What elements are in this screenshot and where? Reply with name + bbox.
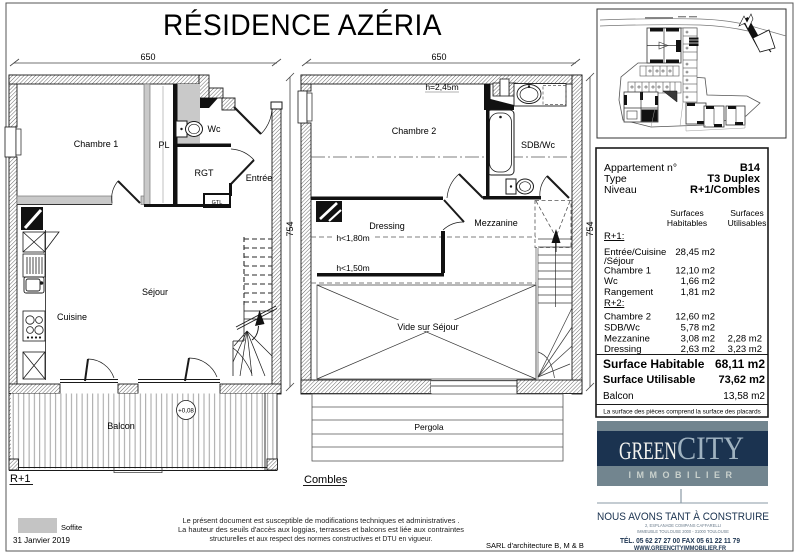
svg-text:12,10 m2: 12,10 m2 [675, 266, 715, 277]
svg-text:PL: PL [158, 140, 169, 150]
svg-text:Séjour: Séjour [142, 287, 168, 297]
svg-text:h<1,50m: h<1,50m [336, 263, 369, 273]
svg-text:Cuisine: Cuisine [57, 312, 87, 322]
svg-text:Chambre 2: Chambre 2 [392, 126, 437, 136]
svg-text:R+2:: R+2: [604, 298, 624, 309]
svg-text:+0,08: +0,08 [178, 408, 194, 415]
svg-text:Mezzanine: Mezzanine [474, 218, 518, 228]
svg-text:structurelles et aux respect d: structurelles et aux respect des normes … [210, 536, 433, 543]
svg-text:RÉSIDENCE AZÉRIA: RÉSIDENCE AZÉRIA [163, 9, 442, 42]
svg-text:Dressing: Dressing [604, 344, 642, 355]
svg-text:R+1:: R+1: [604, 231, 624, 242]
svg-text:Pergola: Pergola [414, 422, 444, 432]
svg-text:2,63 m2: 2,63 m2 [681, 344, 715, 355]
svg-text:31 Janvier 2019: 31 Janvier 2019 [13, 536, 70, 545]
svg-text:Mezzanine: Mezzanine [604, 334, 650, 345]
svg-text:Wc: Wc [604, 276, 618, 287]
svg-text:3,23 m2: 3,23 m2 [728, 344, 762, 355]
svg-text:754: 754 [585, 221, 595, 236]
svg-text:IMMOBILIER: IMMOBILIER [629, 470, 738, 480]
svg-text:5,78 m2: 5,78 m2 [681, 323, 715, 334]
svg-text:SARL d'architecture B, M & B: SARL d'architecture B, M & B [486, 541, 584, 550]
svg-text:2,28 m2: 2,28 m2 [728, 334, 762, 345]
svg-text:Niveau: Niveau [604, 184, 637, 196]
svg-text:28,45 m2: 28,45 m2 [675, 247, 715, 258]
svg-text:RGT: RGT [195, 168, 215, 178]
svg-text:Entrée: Entrée [246, 173, 273, 183]
svg-text:12,60 m2: 12,60 m2 [675, 312, 715, 323]
svg-text:73,62 m2: 73,62 m2 [719, 374, 765, 386]
svg-text:Surfaces: Surfaces [730, 208, 764, 218]
svg-text:TÉL. 05 62 27 27 00 FAX 05 61: TÉL. 05 62 27 27 00 FAX 05 61 22 11 79 [620, 536, 740, 545]
svg-text:Dressing: Dressing [369, 221, 405, 231]
svg-text:La hauteur des seuils d'accès: La hauteur des seuils d'accès aux loggia… [178, 527, 465, 534]
svg-text:CITY: CITY [677, 431, 744, 467]
svg-text:GREEN: GREEN [619, 438, 677, 465]
svg-text:650: 650 [140, 52, 155, 62]
svg-text:Soffite: Soffite [61, 523, 82, 532]
svg-text:650: 650 [431, 52, 446, 62]
svg-text:Balcon: Balcon [603, 391, 634, 402]
svg-text:Surface Utilisable: Surface Utilisable [603, 374, 695, 386]
svg-text:R+1: R+1 [10, 473, 31, 485]
svg-text:NOUS AVONS TANT À CONSTRUIRE: NOUS AVONS TANT À CONSTRUIRE [597, 510, 769, 523]
svg-text:Balcon: Balcon [107, 421, 135, 431]
svg-text:Chambre 1: Chambre 1 [604, 266, 651, 277]
svg-text:Chambre 1: Chambre 1 [74, 139, 119, 149]
svg-text:3,08 m2: 3,08 m2 [681, 334, 715, 345]
svg-text:h=2,45m: h=2,45m [425, 82, 458, 92]
svg-text:WWW.GREENCITYIMMOBILIER.FR: WWW.GREENCITYIMMOBILIER.FR [634, 545, 726, 552]
svg-text:Rangement: Rangement [604, 287, 653, 298]
svg-text:Chambre 2: Chambre 2 [604, 312, 651, 323]
svg-text:13,58 m2: 13,58 m2 [723, 391, 765, 402]
svg-text:SDB/Wc: SDB/Wc [521, 140, 556, 150]
svg-text:Habitables: Habitables [667, 218, 707, 228]
svg-text:Combles: Combles [304, 474, 348, 486]
svg-text:SDB/Wc: SDB/Wc [604, 323, 640, 334]
svg-text:IMMEUBLE TOULOUSE 2000 - 31000: IMMEUBLE TOULOUSE 2000 - 31000 TOULOUSE [637, 529, 729, 534]
svg-text:Le présent document est suscep: Le présent document est susceptible de m… [183, 518, 460, 525]
svg-text:Wc: Wc [208, 124, 221, 134]
svg-text:Surface Habitable: Surface Habitable [603, 357, 705, 371]
svg-text:754: 754 [285, 221, 295, 236]
svg-text:Utilisables: Utilisables [728, 218, 767, 228]
svg-text:Surfaces: Surfaces [670, 208, 704, 218]
svg-text:h<1,80m: h<1,80m [336, 233, 369, 243]
svg-text:La surface des pièces comprend: La surface des pièces comprend la surfac… [603, 409, 761, 416]
svg-text:1,81 m2: 1,81 m2 [681, 287, 715, 298]
svg-text:R+1/Combles: R+1/Combles [690, 184, 760, 196]
svg-text:1,66 m2: 1,66 m2 [681, 276, 715, 287]
svg-text:68,11 m2: 68,11 m2 [715, 357, 765, 371]
svg-text:Vide sur Séjour: Vide sur Séjour [397, 322, 458, 332]
svg-text:2, ESPLANADE COMPANS CAFFARELL: 2, ESPLANADE COMPANS CAFFARELLI [645, 523, 721, 528]
